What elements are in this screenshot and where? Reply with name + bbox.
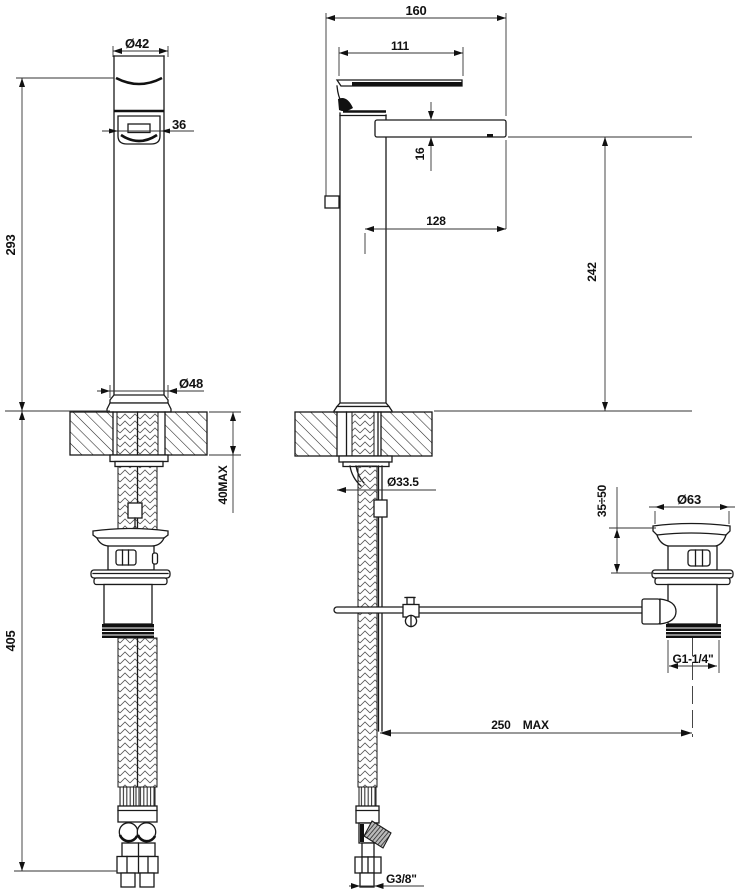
dim-label-deck-thickness: 40MAX (216, 465, 230, 504)
mounting-nut-front (110, 455, 168, 467)
base-flange-front (107, 395, 171, 412)
base-flange-side (334, 403, 392, 412)
dim-outlet-connection: G1-1/4" (668, 640, 719, 673)
dim-label-length-below-deck: 405 (3, 630, 18, 651)
dim-cap-diameter: Ø42 (113, 36, 168, 57)
dim-label-deck-clamp-range: 35÷50 (595, 484, 609, 517)
dim-label-outlet-connection: G1-1/4" (673, 652, 714, 666)
rod-clamp (403, 598, 419, 627)
dim-rod-reach: 250 MAX (380, 718, 692, 737)
dim-label-overall-depth: 160 (405, 3, 426, 18)
dim-label-supply-connection: G3/8" (386, 872, 417, 886)
spout-side (375, 120, 506, 137)
dim-shank-diameter: Ø33.5 (337, 475, 436, 493)
dim-label-lever-length: 111 (391, 39, 410, 53)
dim-height-above-deck: 293 (3, 78, 114, 411)
popup-waste-front (91, 529, 170, 639)
dim-spout-height: 242 (434, 137, 692, 411)
dim-label-cap-diameter: Ø42 (125, 36, 149, 51)
dim-label-base-diameter: Ø48 (179, 376, 203, 391)
dim-deck-clamp-range: 35÷50 (595, 484, 656, 573)
handle-front (118, 116, 160, 144)
dim-label-spout-height: 242 (585, 262, 599, 282)
rod-ball-joint (642, 599, 676, 624)
dim-deck-thickness: 40MAX (209, 412, 241, 513)
dim-label-waste-flange-diameter: Ø63 (677, 492, 701, 507)
faucet-body-front (114, 56, 164, 395)
dim-label-height-above-deck: 293 (3, 234, 18, 255)
popup-waste-side-view (642, 524, 733, 738)
popup-linkage-rod (334, 607, 660, 613)
dim-overall-depth: 160 (326, 3, 506, 116)
body-side (340, 113, 386, 403)
dim-lever-length: 111 (339, 39, 463, 76)
dim-label-rod-reach: 250 MAX (491, 718, 549, 732)
dim-label-spout-reach: 128 (426, 214, 446, 228)
dim-label-handle-width: 36 (172, 117, 186, 132)
front-view (70, 56, 207, 887)
hose-fittings-front (117, 787, 158, 887)
dim-label-spout-thickness: 16 (413, 147, 427, 160)
dim-waste-flange-diameter: Ø63 (649, 492, 735, 524)
technical-drawing-basin-mixer: Ø42 36 293 405 (0, 0, 735, 894)
dim-length-below-deck: 405 (3, 411, 117, 871)
dim-label-shank-diameter: Ø33.5 (387, 475, 419, 489)
